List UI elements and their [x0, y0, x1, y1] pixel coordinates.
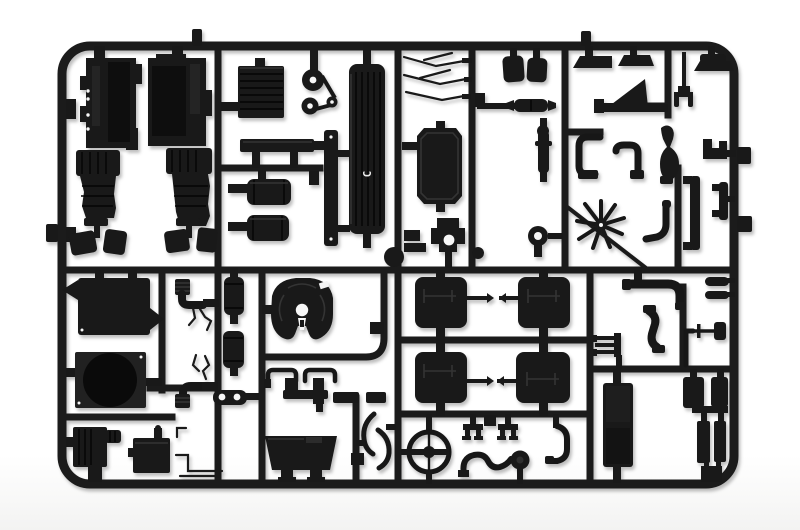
muffler-part — [477, 99, 556, 112]
crossmember-part — [240, 139, 326, 185]
side-channel-bracket-parts — [683, 139, 736, 250]
engine-block-left-part — [76, 46, 142, 238]
sprue-letter-marking: C — [361, 171, 374, 178]
gate-tab — [581, 31, 591, 46]
slatted-panel-c-part: C — [349, 50, 385, 248]
drain-valve-part — [686, 322, 726, 365]
corrugated-hose-parts — [175, 279, 219, 408]
exhaust-elbow-pipe-parts — [578, 137, 644, 179]
photo-background: C — [0, 0, 800, 530]
sprue-illustration: C — [0, 0, 800, 530]
fan-j-pipe-part — [646, 200, 671, 239]
transmission-flap-parts — [68, 227, 218, 256]
air-pipe-elbow-part — [622, 270, 686, 310]
fifth-wheel-coupling-part — [262, 278, 333, 339]
air-filter-canister-parts — [228, 170, 291, 241]
air-reservoir-tank-parts — [223, 268, 244, 376]
exhaust-turbo-pipe-part — [458, 451, 530, 485]
trident-bracket-part — [593, 333, 622, 369]
engine-block-right-part — [148, 46, 212, 238]
cab-roof-panel-part — [62, 270, 164, 335]
gate-tab — [737, 216, 752, 232]
battery-box-part — [73, 427, 121, 482]
engine-cover-panel-part — [402, 121, 462, 212]
line-clip-parts — [462, 414, 518, 440]
mount-bracket-part — [404, 218, 465, 268]
shock-absorber-part — [535, 118, 552, 182]
exhaust-s-pipe-part — [643, 305, 665, 353]
roof-deflector-fin-part — [594, 79, 668, 113]
sprue-photo: C — [0, 0, 800, 530]
wiper-arm-parts — [404, 53, 472, 100]
gate-tab — [46, 224, 58, 242]
fan-shroud-ring-part — [75, 352, 162, 408]
radiator-fan-part — [566, 201, 646, 268]
towing-ring-part — [528, 226, 563, 257]
twin-hole-plate-part — [213, 390, 259, 405]
pulley-belt-part — [302, 50, 338, 115]
gear-lever-boot-part — [660, 126, 679, 185]
gate-tab — [737, 147, 751, 164]
door-step-panel-part — [603, 369, 633, 483]
mounting-strip-part — [324, 130, 350, 246]
fuel-tank-saddle-part — [265, 436, 337, 482]
electrical-box-part — [128, 425, 170, 473]
brake-valve-assembly-part — [264, 370, 335, 412]
chassis-bar-parts — [697, 413, 726, 482]
seat-cushion-parts — [502, 48, 547, 83]
j-shaped-pipe-part — [545, 414, 567, 464]
gate-tab — [192, 29, 202, 46]
radiator-core-part — [221, 58, 284, 118]
steering-fork-part — [674, 52, 693, 107]
steering-wheel-part — [401, 414, 449, 484]
chassis-pad-parts-right — [683, 369, 728, 413]
